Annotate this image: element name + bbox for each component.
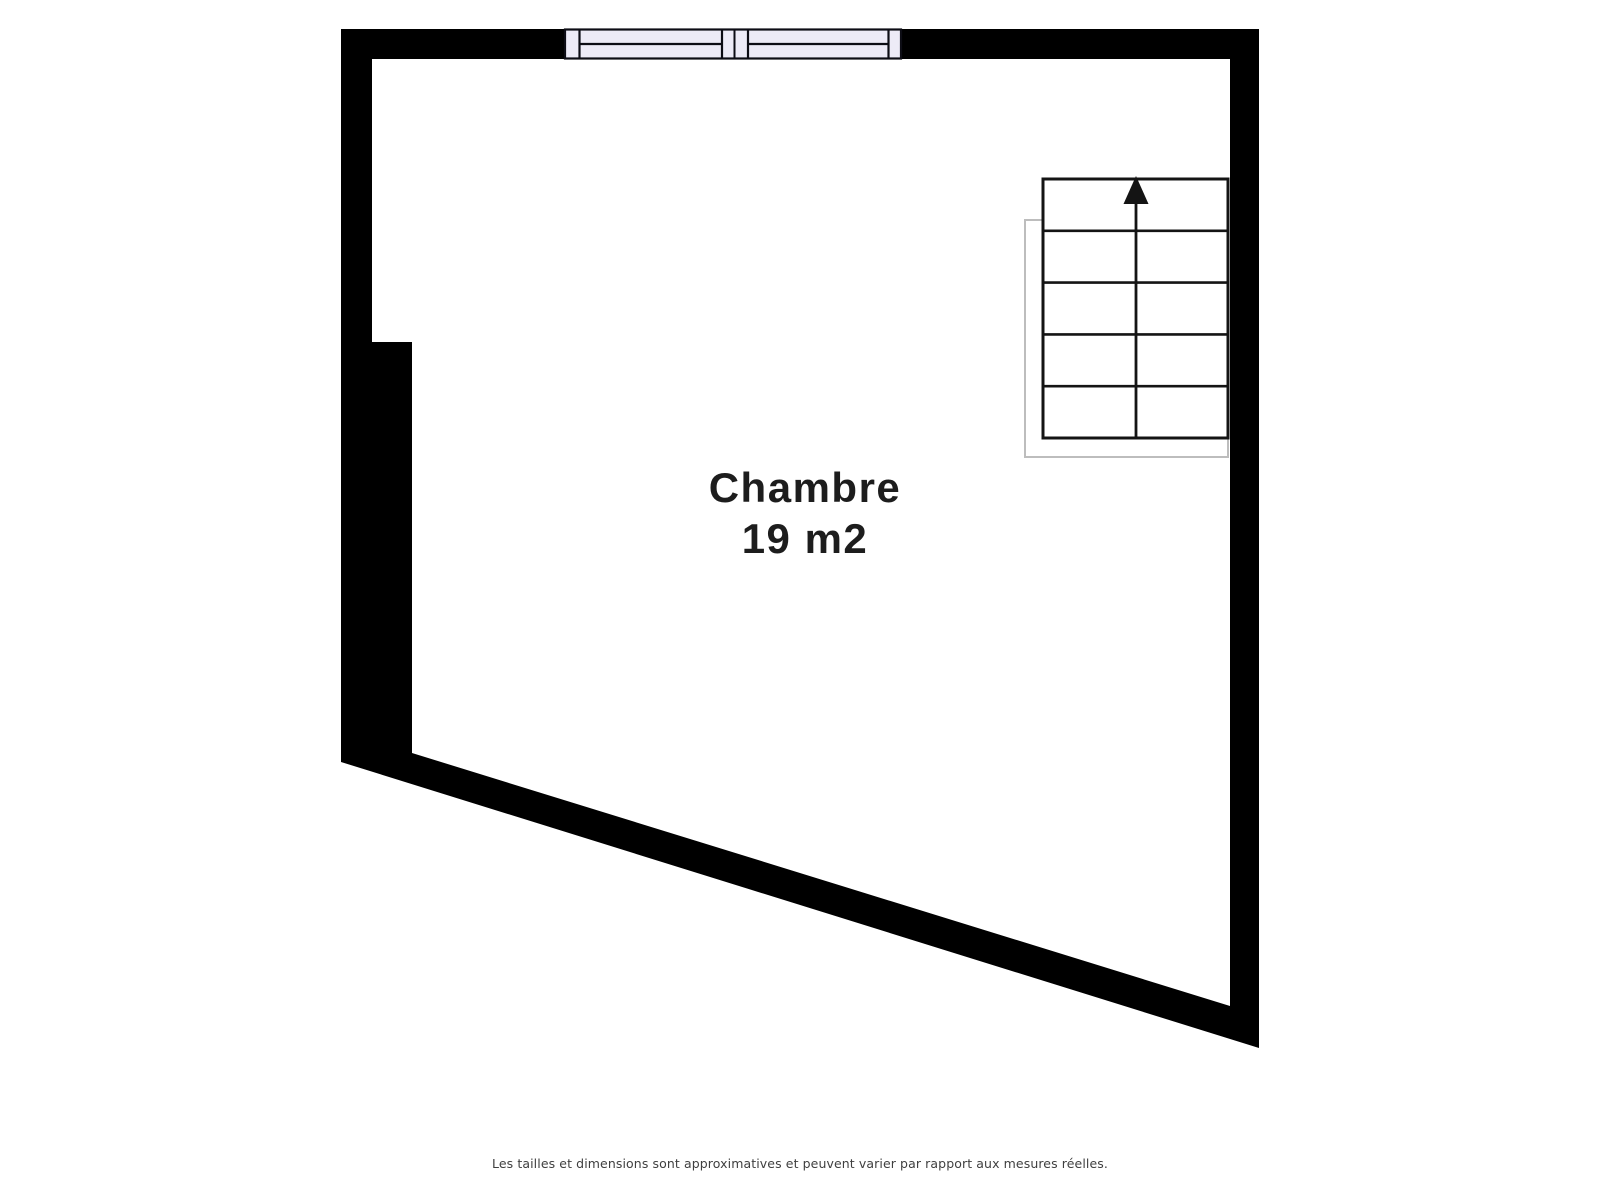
disclaimer-text: Les tailles et dimensions sont approxima… xyxy=(0,1156,1600,1171)
floorplan-page: Chambre 19 m2 Les tailles et dimensions … xyxy=(0,0,1600,1200)
room-name: Chambre xyxy=(709,462,902,513)
room-area: 19 m2 xyxy=(709,513,902,564)
window xyxy=(565,30,901,59)
floorplan-canvas xyxy=(0,0,1600,1200)
staircase xyxy=(1025,176,1228,457)
room-label: Chambre 19 m2 xyxy=(709,462,902,564)
